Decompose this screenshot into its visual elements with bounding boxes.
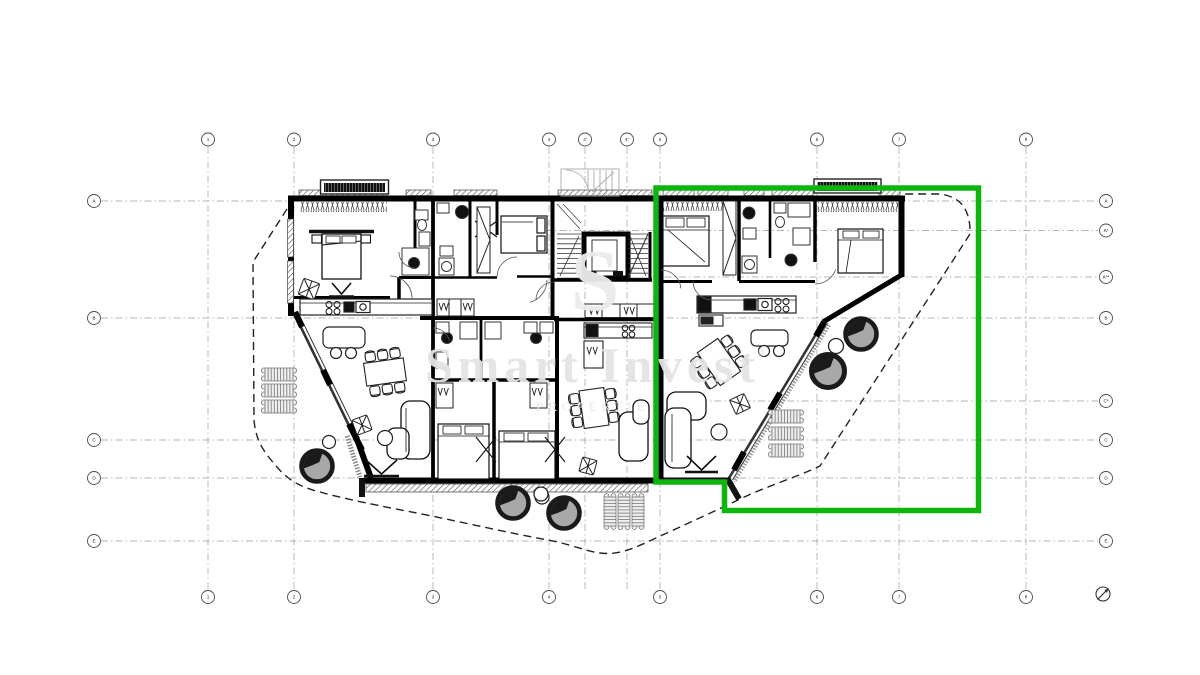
svg-text:C*: C* (1103, 399, 1108, 404)
svg-text:1: 1 (207, 595, 210, 600)
svg-text:4'': 4'' (625, 137, 629, 142)
svg-text:8: 8 (1025, 137, 1028, 142)
svg-text:8: 8 (1025, 595, 1028, 600)
svg-text:6: 6 (816, 595, 819, 600)
svg-text:A*: A* (1104, 228, 1109, 233)
svg-text:B: B (92, 316, 95, 321)
svg-text:5: 5 (659, 595, 662, 600)
svg-text:4: 4 (548, 595, 551, 600)
svg-text:E: E (92, 539, 95, 544)
svg-text:5: 5 (659, 137, 662, 142)
svg-text:4': 4' (583, 137, 587, 142)
svg-text:3: 3 (432, 595, 435, 600)
svg-text:E: E (1104, 539, 1107, 544)
svg-text:1: 1 (207, 137, 210, 142)
svg-text:Smart Invest: Smart Invest (425, 337, 755, 393)
svg-text:S: S (571, 233, 620, 330)
svg-text:®: ® (758, 344, 768, 359)
svg-text:6: 6 (816, 137, 819, 142)
svg-text:PROPERTIES: PROPERTIES (536, 399, 662, 414)
svg-text:A**: A** (1103, 275, 1110, 280)
svg-text:7: 7 (898, 137, 901, 142)
svg-text:7: 7 (898, 595, 901, 600)
svg-text:4: 4 (548, 137, 551, 142)
svg-text:2: 2 (293, 137, 296, 142)
svg-text:3: 3 (432, 137, 435, 142)
svg-text:2: 2 (293, 595, 296, 600)
svg-text:B: B (1104, 316, 1107, 321)
